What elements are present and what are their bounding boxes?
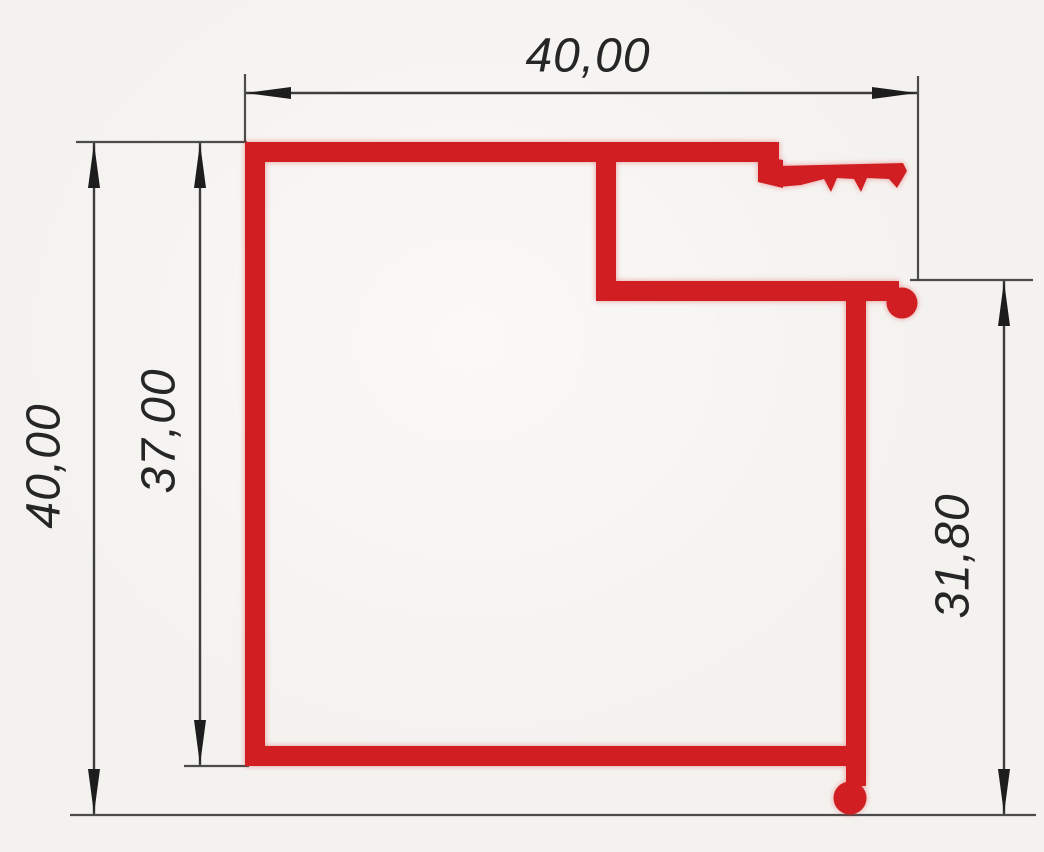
dimension-label-body-height: 37,00 <box>132 368 187 493</box>
dimension-overall-height <box>88 143 100 814</box>
profile-hook-bulb-lower <box>834 782 867 815</box>
profile-cross-section <box>255 142 918 815</box>
dimension-label-top-width: 40,00 <box>525 29 650 84</box>
extension-lines <box>70 74 1036 815</box>
arrowhead-down-icon <box>88 769 100 814</box>
profile-main-outline <box>255 152 856 756</box>
arrowhead-up-icon <box>194 143 206 188</box>
arrowhead-down-icon <box>998 769 1010 814</box>
dimension-label-right-flange-height: 31,80 <box>926 493 981 618</box>
arrowhead-up-icon <box>88 143 100 188</box>
drawing-canvas: 40,00 40,00 37,00 31,80 <box>0 0 1044 852</box>
dimension-body-height <box>194 143 206 765</box>
dimension-label-overall-height: 40,00 <box>17 403 72 528</box>
arrowhead-right-icon <box>872 87 917 99</box>
profile-serrated-fin <box>778 163 907 192</box>
dimension-right-flange-height <box>998 281 1010 814</box>
arrowhead-left-icon <box>246 87 291 99</box>
arrowhead-up-icon <box>998 281 1010 326</box>
arrowhead-down-icon <box>194 720 206 765</box>
profile-hook-bulb-upper <box>887 288 918 319</box>
dimension-top-width <box>246 87 917 99</box>
